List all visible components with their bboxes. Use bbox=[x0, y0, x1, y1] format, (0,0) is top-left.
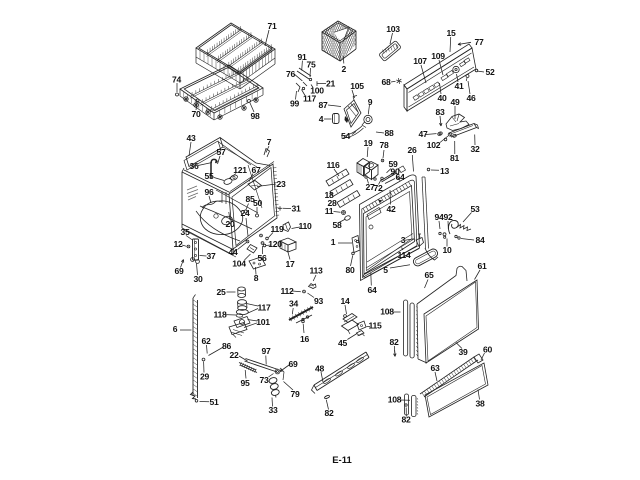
svg-text:104: 104 bbox=[232, 259, 246, 269]
svg-text:109: 109 bbox=[431, 51, 445, 61]
svg-text:69: 69 bbox=[289, 359, 298, 369]
svg-text:83: 83 bbox=[436, 107, 445, 117]
svg-text:54: 54 bbox=[341, 131, 350, 141]
svg-text:16: 16 bbox=[300, 334, 309, 344]
svg-text:35: 35 bbox=[181, 227, 190, 237]
svg-text:99: 99 bbox=[290, 99, 299, 109]
svg-text:112: 112 bbox=[281, 286, 294, 296]
svg-text:60: 60 bbox=[483, 345, 492, 355]
svg-text:92: 92 bbox=[444, 212, 453, 222]
svg-text:116: 116 bbox=[327, 160, 340, 170]
svg-text:118: 118 bbox=[214, 310, 227, 320]
svg-text:84: 84 bbox=[476, 235, 485, 245]
svg-text:93: 93 bbox=[314, 296, 323, 306]
svg-text:96: 96 bbox=[205, 187, 214, 197]
svg-text:11: 11 bbox=[325, 206, 334, 216]
svg-text:20: 20 bbox=[226, 219, 235, 229]
svg-text:76: 76 bbox=[286, 69, 295, 79]
svg-text:69: 69 bbox=[175, 266, 184, 276]
svg-text:97: 97 bbox=[262, 346, 271, 356]
svg-text:52: 52 bbox=[486, 67, 495, 77]
svg-text:7: 7 bbox=[267, 137, 272, 147]
svg-text:121: 121 bbox=[233, 165, 247, 175]
svg-text:E-11: E-11 bbox=[332, 455, 352, 466]
svg-text:34: 34 bbox=[289, 299, 298, 309]
svg-text:65: 65 bbox=[425, 270, 434, 280]
svg-text:108: 108 bbox=[388, 395, 402, 405]
svg-text:50: 50 bbox=[253, 198, 262, 208]
svg-text:98: 98 bbox=[251, 111, 260, 121]
svg-text:62: 62 bbox=[202, 336, 211, 346]
svg-text:115: 115 bbox=[369, 321, 382, 331]
svg-text:37: 37 bbox=[207, 251, 216, 261]
svg-text:80: 80 bbox=[346, 265, 355, 275]
svg-text:81: 81 bbox=[450, 153, 459, 163]
svg-text:110: 110 bbox=[299, 221, 312, 231]
svg-text:46: 46 bbox=[467, 93, 476, 103]
svg-text:64: 64 bbox=[368, 285, 377, 295]
svg-text:103: 103 bbox=[386, 24, 400, 34]
svg-text:117: 117 bbox=[258, 303, 271, 313]
svg-text:119: 119 bbox=[271, 224, 284, 234]
svg-text:107: 107 bbox=[413, 56, 427, 66]
svg-text:14: 14 bbox=[341, 296, 350, 306]
svg-text:105: 105 bbox=[350, 81, 364, 91]
svg-text:4: 4 bbox=[319, 114, 324, 124]
svg-text:74: 74 bbox=[172, 75, 181, 85]
svg-text:6: 6 bbox=[173, 324, 178, 334]
svg-text:120: 120 bbox=[268, 239, 282, 249]
svg-text:10: 10 bbox=[443, 245, 452, 255]
svg-text:77: 77 bbox=[475, 37, 484, 47]
svg-text:29: 29 bbox=[200, 372, 209, 382]
svg-text:102: 102 bbox=[427, 140, 441, 150]
svg-text:51: 51 bbox=[210, 397, 219, 407]
svg-text:71: 71 bbox=[268, 21, 277, 31]
svg-text:64: 64 bbox=[396, 172, 405, 182]
svg-text:39: 39 bbox=[459, 347, 468, 357]
svg-text:82: 82 bbox=[390, 337, 399, 347]
svg-text:33: 33 bbox=[269, 405, 278, 415]
svg-text:41: 41 bbox=[455, 81, 464, 91]
svg-text:24: 24 bbox=[241, 208, 250, 218]
svg-text:22: 22 bbox=[230, 350, 239, 360]
svg-text:67: 67 bbox=[252, 165, 261, 175]
svg-text:82: 82 bbox=[325, 408, 334, 418]
svg-text:32: 32 bbox=[471, 144, 480, 154]
svg-text:13: 13 bbox=[440, 166, 449, 176]
svg-text:79: 79 bbox=[291, 389, 300, 399]
svg-text:49: 49 bbox=[451, 97, 460, 107]
svg-text:78: 78 bbox=[380, 140, 389, 150]
svg-text:95: 95 bbox=[241, 378, 250, 388]
svg-text:30: 30 bbox=[194, 274, 203, 284]
svg-text:48: 48 bbox=[315, 364, 324, 374]
svg-text:87: 87 bbox=[319, 100, 328, 110]
svg-text:36: 36 bbox=[190, 161, 199, 171]
svg-text:43: 43 bbox=[187, 133, 196, 143]
svg-text:88: 88 bbox=[385, 128, 394, 138]
svg-text:25: 25 bbox=[217, 287, 226, 297]
svg-text:55: 55 bbox=[205, 171, 214, 181]
svg-text:3: 3 bbox=[401, 235, 406, 245]
svg-text:101: 101 bbox=[256, 317, 270, 327]
svg-text:68: 68 bbox=[382, 77, 391, 87]
svg-text:1: 1 bbox=[331, 237, 336, 247]
svg-text:58: 58 bbox=[333, 220, 342, 230]
svg-text:8: 8 bbox=[254, 273, 259, 283]
svg-text:31: 31 bbox=[292, 204, 301, 214]
svg-text:17: 17 bbox=[286, 259, 295, 269]
svg-text:26: 26 bbox=[408, 145, 417, 155]
svg-text:23: 23 bbox=[277, 179, 286, 189]
svg-text:42: 42 bbox=[387, 204, 396, 214]
svg-text:15: 15 bbox=[447, 28, 456, 38]
svg-text:2: 2 bbox=[341, 64, 346, 74]
svg-text:5: 5 bbox=[383, 265, 388, 275]
svg-text:114: 114 bbox=[398, 250, 411, 260]
svg-text:9: 9 bbox=[368, 97, 373, 107]
svg-text:113: 113 bbox=[310, 266, 323, 276]
svg-text:45: 45 bbox=[338, 338, 347, 348]
svg-text:72: 72 bbox=[374, 183, 383, 193]
svg-text:53: 53 bbox=[471, 204, 480, 214]
svg-text:44: 44 bbox=[229, 247, 238, 257]
svg-text:108: 108 bbox=[380, 307, 394, 317]
svg-text:21: 21 bbox=[326, 79, 335, 89]
svg-text:19: 19 bbox=[364, 138, 373, 148]
svg-text:63: 63 bbox=[431, 363, 440, 373]
svg-text:12: 12 bbox=[174, 239, 183, 249]
svg-text:57: 57 bbox=[217, 147, 226, 157]
svg-text:61: 61 bbox=[478, 261, 487, 271]
svg-text:100: 100 bbox=[310, 86, 324, 96]
svg-text:38: 38 bbox=[476, 399, 485, 409]
svg-text:40: 40 bbox=[438, 93, 447, 103]
svg-text:47: 47 bbox=[419, 129, 428, 139]
svg-text:82: 82 bbox=[402, 415, 411, 425]
svg-text:73: 73 bbox=[260, 375, 269, 385]
svg-text:70: 70 bbox=[192, 109, 201, 119]
svg-text:75: 75 bbox=[307, 60, 316, 70]
svg-text:56: 56 bbox=[258, 253, 267, 263]
